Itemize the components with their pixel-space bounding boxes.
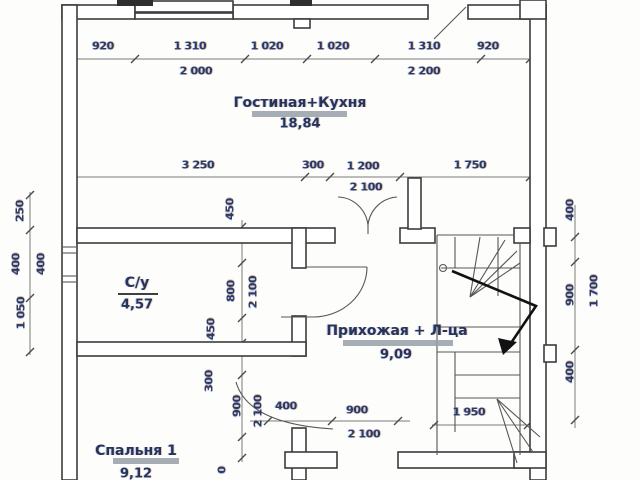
room-area-living-kitchen: 18,84 bbox=[279, 117, 320, 132]
dim-label: 300 bbox=[302, 159, 324, 172]
floor-plan-canvas: 920 1 310 1 020 1 020 1 310 920 2 000 2 … bbox=[0, 0, 640, 480]
dim-label: 400 bbox=[564, 199, 577, 221]
dim-label: 450 bbox=[224, 198, 237, 220]
dim-label: 1 020 bbox=[251, 40, 283, 53]
dim-label: 1 700 bbox=[588, 275, 601, 307]
dim-label: 400 bbox=[35, 253, 48, 275]
room-label-divider bbox=[343, 340, 453, 346]
dim-label: 920 bbox=[477, 40, 499, 53]
dim-label: 2 100 bbox=[350, 181, 382, 194]
dim-label: 1 750 bbox=[454, 159, 486, 172]
dim-label: 800 bbox=[225, 280, 238, 302]
room-name-bathroom: С/у bbox=[125, 275, 150, 291]
dim-label: 400 bbox=[10, 253, 23, 275]
dim-label: 2 100 bbox=[348, 428, 380, 441]
pilaster-right-upper bbox=[544, 228, 556, 246]
room-area-bathroom: 4,57 bbox=[121, 298, 153, 313]
room-name-living-kitchen: Гостиная+Кухня bbox=[234, 95, 367, 111]
room-label-divider bbox=[118, 293, 158, 295]
dim-label: 1 310 bbox=[174, 40, 206, 53]
dim-label: 450 bbox=[205, 318, 218, 340]
double-door-right-arc bbox=[368, 197, 397, 225]
room-area-bedroom1: 9,12 bbox=[120, 467, 152, 480]
dim-label: 1 020 bbox=[317, 40, 349, 53]
dim-label: 3 250 bbox=[182, 159, 214, 172]
dim-label: 1 050 bbox=[15, 297, 28, 329]
interior-walls bbox=[77, 178, 546, 480]
dim-label: 920 bbox=[92, 40, 114, 53]
entry-door-leaf bbox=[434, 7, 466, 39]
dim-label: 900 bbox=[231, 395, 244, 417]
dim-label: 1 200 bbox=[347, 160, 379, 173]
room-name-bedroom1: Спальня 1 bbox=[95, 443, 177, 459]
room-label-divider bbox=[113, 458, 179, 464]
stair-direction-arrow bbox=[452, 271, 536, 355]
dim-label: 2 000 bbox=[180, 65, 212, 78]
dim-label: 2 100 bbox=[252, 395, 265, 427]
dim-label: 300 bbox=[203, 370, 216, 392]
dim-label: 900 bbox=[564, 284, 577, 306]
dim-label: 1 310 bbox=[408, 40, 440, 53]
dim-label: 2 200 bbox=[408, 65, 440, 78]
dim-label: 250 bbox=[14, 200, 27, 222]
dim-label: 1 950 bbox=[453, 406, 485, 419]
double-door-left-arc bbox=[338, 197, 368, 225]
dim-label: 0 bbox=[216, 466, 229, 473]
dim-label: 400 bbox=[275, 400, 297, 413]
dim-label: 900 bbox=[346, 404, 368, 417]
floor-plan-drawing bbox=[0, 0, 640, 480]
bathroom-door-arc bbox=[313, 267, 367, 317]
pilaster-right-lower bbox=[544, 345, 556, 362]
dim-label: 2 100 bbox=[247, 276, 260, 308]
dim-label: 400 bbox=[564, 361, 577, 383]
room-name-hallway-stairs: Прихожая + Л-ца bbox=[326, 323, 467, 339]
room-area-hallway-stairs: 9,09 bbox=[380, 348, 412, 363]
